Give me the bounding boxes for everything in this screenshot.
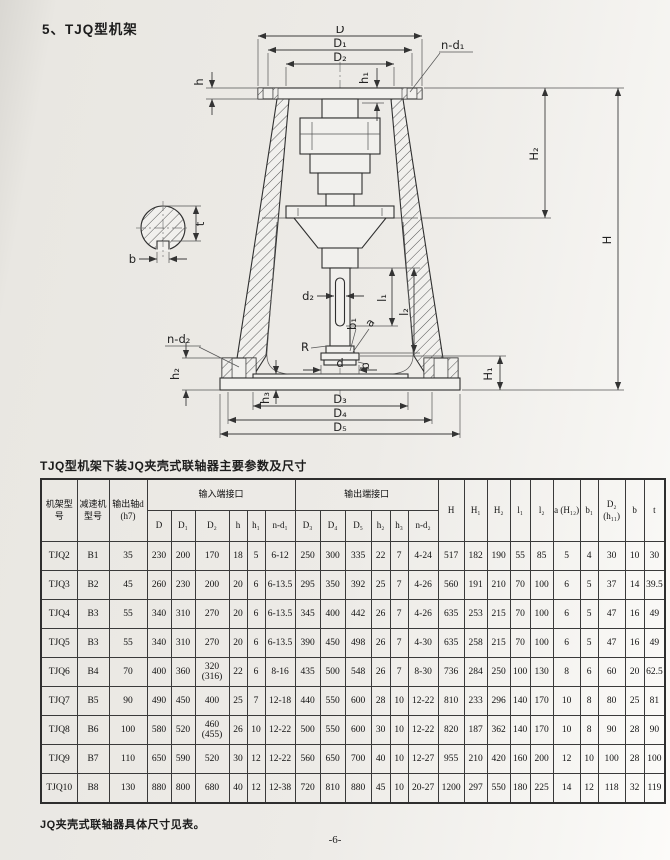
table-cell: 7 xyxy=(390,629,408,658)
table-cell: 5 xyxy=(553,542,580,571)
table-cell: 233 xyxy=(464,687,487,716)
bottom-flange xyxy=(220,378,460,390)
frame-model-cell: TJQ3 xyxy=(41,571,77,600)
col-l2: l₂ xyxy=(530,479,553,542)
table-cell: 7 xyxy=(390,658,408,687)
frame-model-cell: TJQ10 xyxy=(41,774,77,804)
table-cell: 5 xyxy=(247,542,265,571)
table-cell: 10 xyxy=(247,716,265,745)
col-b1: b₁ xyxy=(580,479,598,542)
table-row: TJQ3B2452602302002066-13.52953503922574-… xyxy=(41,571,665,600)
col-h3: h₃ xyxy=(390,511,408,542)
table-cell: 200 xyxy=(195,571,229,600)
table-cell: 442 xyxy=(345,600,371,629)
table-cell: 70 xyxy=(109,658,147,687)
col-H2: H₂ xyxy=(487,479,510,542)
dim-D5: D₅ xyxy=(333,420,347,434)
table-cell: B8 xyxy=(77,774,109,804)
table-cell: 16 xyxy=(625,629,644,658)
table-cell: 6 xyxy=(247,571,265,600)
table-cell: 435 xyxy=(295,658,320,687)
frame-model-cell: TJQ9 xyxy=(41,745,77,774)
dim-l1: l₁ xyxy=(375,294,389,302)
table-cell: 35 xyxy=(109,542,147,571)
table-cell: 90 xyxy=(109,687,147,716)
table-cell: 12-22 xyxy=(265,716,295,745)
dim-l2: l₂ xyxy=(397,308,411,316)
table-cell: 215 xyxy=(487,629,510,658)
table-cell: 60 xyxy=(598,658,625,687)
col-n-d2: n-d₂ xyxy=(408,511,438,542)
table-cell: 500 xyxy=(295,716,320,745)
table-cell: 47 xyxy=(598,600,625,629)
table-cell: 517 xyxy=(438,542,464,571)
table-cell: 310 xyxy=(171,600,195,629)
table-cell: 500 xyxy=(320,658,345,687)
table-cell: 182 xyxy=(464,542,487,571)
table-cell: 360 xyxy=(171,658,195,687)
table-cell: 100 xyxy=(530,600,553,629)
col-l1: l₁ xyxy=(510,479,530,542)
table-cell: 215 xyxy=(487,600,510,629)
table-cell: 20-27 xyxy=(408,774,438,804)
table-cell: 90 xyxy=(598,716,625,745)
frame-model-cell: TJQ6 xyxy=(41,658,77,687)
header-row-1: 机架型号 减速机型号 输出轴d (h7) 输入端接口 输出端接口 H H₁ H₂… xyxy=(41,479,665,511)
col-D2-groove: D₂ (h₁₁) xyxy=(598,479,625,542)
table-cell: 400 xyxy=(147,658,171,687)
table-cell: 5 xyxy=(580,629,598,658)
table-cell: 10 xyxy=(390,687,408,716)
table-cell: 345 xyxy=(295,600,320,629)
col-H1: H₁ xyxy=(464,479,487,542)
table-cell: 180 xyxy=(510,774,530,804)
table-cell: 880 xyxy=(345,774,371,804)
top-flange xyxy=(258,88,422,99)
table-cell: 250 xyxy=(295,542,320,571)
dim-D: D xyxy=(336,26,345,36)
col-output-shaft: 输出轴d (h7) xyxy=(109,479,147,542)
table-cell: 12-22 xyxy=(265,745,295,774)
table-row: TJQ10B8130880800680401212-38720810880451… xyxy=(41,774,665,804)
table-cell: 6 xyxy=(247,629,265,658)
table-cell: 4-26 xyxy=(408,571,438,600)
table-cell: 119 xyxy=(644,774,665,804)
dim-H1: H₁ xyxy=(481,367,495,380)
table-cell: 6 xyxy=(553,600,580,629)
table-cell: 270 xyxy=(195,600,229,629)
table-row: TJQ6B470400360320 (316)2268-164355005482… xyxy=(41,658,665,687)
table-cell: 800 xyxy=(171,774,195,804)
dim-D3: D₃ xyxy=(333,392,347,406)
table-cell: 26 xyxy=(371,629,390,658)
table-cell: 26 xyxy=(371,600,390,629)
table-cell: 736 xyxy=(438,658,464,687)
table-cell: 8-30 xyxy=(408,658,438,687)
table-cell: 6 xyxy=(247,658,265,687)
dim-b-section: b xyxy=(129,252,136,266)
table-cell: 81 xyxy=(644,687,665,716)
table-cell: B4 xyxy=(77,658,109,687)
left-wall xyxy=(234,99,289,378)
table-cell: 720 xyxy=(295,774,320,804)
table-cell: 45 xyxy=(371,774,390,804)
table-cell: 1200 xyxy=(438,774,464,804)
table-cell: 4-30 xyxy=(408,629,438,658)
table-cell: 5 xyxy=(580,571,598,600)
table-cell: 6 xyxy=(580,658,598,687)
table-cell: 30 xyxy=(371,716,390,745)
table-cell: 6 xyxy=(247,600,265,629)
table-cell: 295 xyxy=(295,571,320,600)
table-cell: 6-13.5 xyxy=(265,629,295,658)
table-cell: 187 xyxy=(464,716,487,745)
table-cell: 560 xyxy=(438,571,464,600)
table-cell: 10 xyxy=(553,716,580,745)
table-cell: 450 xyxy=(171,687,195,716)
table-row: TJQ2B1352302001701856-122503003352274-24… xyxy=(41,542,665,571)
table-row: TJQ8B6100580520460 (455)261012-225005506… xyxy=(41,716,665,745)
table-cell: 45 xyxy=(109,571,147,600)
table-cell: 25 xyxy=(625,687,644,716)
dim-n-d1: n-d₁ xyxy=(441,38,464,52)
dim-D2: D₂ xyxy=(333,50,346,64)
technical-drawing: D D₁ D₂ h₁ n-d₁ h H₂ H H₁ l₁ l₂ d₂ R a b… xyxy=(0,26,670,456)
table-cell: 440 xyxy=(295,687,320,716)
table-cell: 7 xyxy=(247,687,265,716)
table-cell: 20 xyxy=(229,571,247,600)
table-cell: 22 xyxy=(229,658,247,687)
table-cell: 635 xyxy=(438,629,464,658)
table-row: TJQ9B7110650590520301212-225606507004010… xyxy=(41,745,665,774)
table-cell: 80 xyxy=(598,687,625,716)
table-cell: 170 xyxy=(195,542,229,571)
dim-R: R xyxy=(301,340,309,354)
col-reducer-model: 减速机型号 xyxy=(77,479,109,542)
table-cell: 22 xyxy=(371,542,390,571)
table-cell: 37 xyxy=(598,571,625,600)
table-cell: 20 xyxy=(229,600,247,629)
table-cell: 6 xyxy=(553,629,580,658)
table-row: TJQ4B3553403102702066-13.53454004422674-… xyxy=(41,600,665,629)
table-cell: 8 xyxy=(553,658,580,687)
table-cell: 225 xyxy=(530,774,553,804)
table-cell: 450 xyxy=(320,629,345,658)
col-h: h xyxy=(229,511,247,542)
table-cell: 8-16 xyxy=(265,658,295,687)
dim-a: a xyxy=(362,316,378,330)
dim-h3: h₃ xyxy=(258,392,272,404)
table-cell: 5 xyxy=(580,600,598,629)
table-cell: 550 xyxy=(320,716,345,745)
dim-d2: d₂ xyxy=(302,289,314,303)
shaft-slot xyxy=(336,278,345,326)
col-h2: h₂ xyxy=(371,511,390,542)
table-cell: 110 xyxy=(109,745,147,774)
table-cell: B3 xyxy=(77,600,109,629)
table-cell: 635 xyxy=(438,600,464,629)
table-cell: 55 xyxy=(109,600,147,629)
table-cell: 28 xyxy=(371,687,390,716)
table-cell: 310 xyxy=(171,629,195,658)
col-D1: D₁ xyxy=(171,511,195,542)
table-cell: 880 xyxy=(147,774,171,804)
table-cell: 210 xyxy=(464,745,487,774)
parameters-table: 机架型号 减速机型号 输出轴d (h7) 输入端接口 输出端接口 H H₁ H₂… xyxy=(40,478,666,804)
col-h1: h₁ xyxy=(247,511,265,542)
table-cell: 130 xyxy=(530,658,553,687)
table-cell: 90 xyxy=(644,716,665,745)
frame-model-cell: TJQ4 xyxy=(41,600,77,629)
table-cell: 230 xyxy=(171,571,195,600)
table-cell: B6 xyxy=(77,716,109,745)
dim-H: H xyxy=(600,236,614,245)
table-cell: B5 xyxy=(77,687,109,716)
table-cell: 170 xyxy=(530,716,553,745)
group-output-port: 输出端接口 xyxy=(295,479,438,511)
table-cell: 4-24 xyxy=(408,542,438,571)
table-cell: 18 xyxy=(229,542,247,571)
dim-n-d2: n-d₂ xyxy=(167,332,190,346)
table-cell: 560 xyxy=(295,745,320,774)
table-cell: 810 xyxy=(320,774,345,804)
table-cell: 284 xyxy=(464,658,487,687)
table-cell: 392 xyxy=(345,571,371,600)
table-cell: 498 xyxy=(345,629,371,658)
table-cell: 362 xyxy=(487,716,510,745)
table-cell: 30 xyxy=(229,745,247,774)
table-cell: 70 xyxy=(510,600,530,629)
table-cell: 62.5 xyxy=(644,658,665,687)
table-cell: 12-27 xyxy=(408,745,438,774)
table-cell: 40 xyxy=(371,745,390,774)
table-cell: 12 xyxy=(553,745,580,774)
table-cell: 130 xyxy=(109,774,147,804)
table-cell: 590 xyxy=(171,745,195,774)
table-cell: 12-22 xyxy=(408,716,438,745)
table-cell: 25 xyxy=(229,687,247,716)
table-cell: 6 xyxy=(553,571,580,600)
col-D2: D₂ xyxy=(195,511,229,542)
table-cell: 118 xyxy=(598,774,625,804)
table-cell: 296 xyxy=(487,687,510,716)
table-cell: 40 xyxy=(229,774,247,804)
table-cell: 32 xyxy=(625,774,644,804)
table-cell: B1 xyxy=(77,542,109,571)
table-cell: 20 xyxy=(625,658,644,687)
table-cell: 335 xyxy=(345,542,371,571)
table-cell: 650 xyxy=(147,745,171,774)
table-cell: 70 xyxy=(510,571,530,600)
table-cell: B3 xyxy=(77,629,109,658)
col-D5: D₅ xyxy=(345,511,371,542)
table-cell: 230 xyxy=(147,542,171,571)
table-cell: 400 xyxy=(195,687,229,716)
table-cell: 26 xyxy=(229,716,247,745)
table-cell: 26 xyxy=(371,658,390,687)
table-cell: 7 xyxy=(390,600,408,629)
base-step xyxy=(253,374,408,378)
table-cell: 47 xyxy=(598,629,625,658)
table-cell: 4 xyxy=(580,542,598,571)
table-cell: 650 xyxy=(320,745,345,774)
table-cell: B2 xyxy=(77,571,109,600)
table-cell: 270 xyxy=(195,629,229,658)
table-cell: 253 xyxy=(464,600,487,629)
table-cell: 820 xyxy=(438,716,464,745)
table-row: TJQ5B3553403102702066-13.53904504982674-… xyxy=(41,629,665,658)
table-cell: 955 xyxy=(438,745,464,774)
table-cell: 49 xyxy=(644,629,665,658)
table-cell: 548 xyxy=(345,658,371,687)
table-cell: 200 xyxy=(171,542,195,571)
page-number: -6- xyxy=(0,834,670,846)
table-cell: 600 xyxy=(345,687,371,716)
table-cell: 550 xyxy=(320,687,345,716)
table-cell: 25 xyxy=(371,571,390,600)
table-cell: 7 xyxy=(390,542,408,571)
table-cell: 350 xyxy=(320,571,345,600)
col-D4: D₄ xyxy=(320,511,345,542)
table-row: TJQ7B59049045040025712-18440550600281012… xyxy=(41,687,665,716)
table-cell: 28 xyxy=(625,716,644,745)
table-cell: 12 xyxy=(580,774,598,804)
dim-d: d xyxy=(336,356,343,370)
dim-h: h xyxy=(192,78,206,85)
dim-H2: H₂ xyxy=(527,147,541,160)
group-input-port: 输入端接口 xyxy=(147,479,295,511)
table-cell: 700 xyxy=(345,745,371,774)
table-cell: 210 xyxy=(487,571,510,600)
table-cell: 170 xyxy=(530,687,553,716)
table-cell: 39.5 xyxy=(644,571,665,600)
table-cell: 100 xyxy=(530,571,553,600)
col-t: t xyxy=(644,479,665,542)
table-body: TJQ2B1352302001701856-122503003352274-24… xyxy=(41,542,665,804)
table-caption: TJQ型机架下装JQ夹壳式联轴器主要参数及尺寸 xyxy=(40,457,307,474)
table-cell: 140 xyxy=(510,687,530,716)
frame-model-cell: TJQ7 xyxy=(41,687,77,716)
col-D3: D₃ xyxy=(295,511,320,542)
table-cell: 12-38 xyxy=(265,774,295,804)
table-cell: 55 xyxy=(109,629,147,658)
table-cell: 12 xyxy=(247,745,265,774)
dim-b1: b₁ xyxy=(345,318,359,330)
table-cell: 400 xyxy=(320,600,345,629)
table-cell: 7 xyxy=(390,571,408,600)
table-cell: 10 xyxy=(580,745,598,774)
table-cell: 85 xyxy=(530,542,553,571)
table-cell: 260 xyxy=(147,571,171,600)
dim-h2: h₂ xyxy=(168,368,182,380)
table-cell: 300 xyxy=(320,542,345,571)
table-cell: 100 xyxy=(510,658,530,687)
dim-t: t xyxy=(193,221,207,226)
table-cell: 580 xyxy=(147,716,171,745)
table-cell: 8 xyxy=(580,687,598,716)
table-cell: 10 xyxy=(390,774,408,804)
col-n-d1: n-d₁ xyxy=(265,511,295,542)
table-cell: 600 xyxy=(345,716,371,745)
table-cell: B7 xyxy=(77,745,109,774)
col-frame-model: 机架型号 xyxy=(41,479,77,542)
table-cell: 100 xyxy=(530,629,553,658)
table-cell: 191 xyxy=(464,571,487,600)
table-cell: 340 xyxy=(147,600,171,629)
table-cell: 10 xyxy=(390,716,408,745)
frame-model-cell: TJQ8 xyxy=(41,716,77,745)
table-cell: 28 xyxy=(625,745,644,774)
table-cell: 10 xyxy=(553,687,580,716)
table-cell: 12-18 xyxy=(265,687,295,716)
dim-h1: h₁ xyxy=(357,72,371,84)
table-cell: 100 xyxy=(644,745,665,774)
col-D: D xyxy=(147,511,171,542)
dim-D1: D₁ xyxy=(333,36,346,50)
right-wall xyxy=(391,99,446,378)
table-cell: 10 xyxy=(390,745,408,774)
table-cell: 6-13.5 xyxy=(265,600,295,629)
table-cell: 16 xyxy=(625,600,644,629)
table-cell: 160 xyxy=(510,745,530,774)
table-cell: 14 xyxy=(553,774,580,804)
table-cell: 70 xyxy=(510,629,530,658)
table-cell: 100 xyxy=(598,745,625,774)
col-b: b xyxy=(625,479,644,542)
table-cell: 8 xyxy=(580,716,598,745)
dim-D4: D₄ xyxy=(333,406,347,420)
table-cell: 20 xyxy=(229,629,247,658)
table-cell: 340 xyxy=(147,629,171,658)
table-cell: 6-12 xyxy=(265,542,295,571)
frame-model-cell: TJQ2 xyxy=(41,542,77,571)
table-cell: 420 xyxy=(487,745,510,774)
taper-hub xyxy=(294,218,386,248)
table-cell: 490 xyxy=(147,687,171,716)
footnote: JQ夹壳式联轴器具体尺寸见表。 xyxy=(40,816,205,832)
table-cell: 12 xyxy=(247,774,265,804)
table-cell: 297 xyxy=(464,774,487,804)
table-cell: 4-26 xyxy=(408,600,438,629)
table-cell: 14 xyxy=(625,571,644,600)
table-cell: 10 xyxy=(625,542,644,571)
table-cell: 550 xyxy=(487,774,510,804)
table-cell: 30 xyxy=(598,542,625,571)
table-cell: 55 xyxy=(510,542,530,571)
table-cell: 49 xyxy=(644,600,665,629)
table-cell: 520 xyxy=(195,745,229,774)
table-cell: 258 xyxy=(464,629,487,658)
table-cell: 100 xyxy=(109,716,147,745)
col-a: a (H₁₂) xyxy=(553,479,580,542)
table-cell: 680 xyxy=(195,774,229,804)
table-cell: 30 xyxy=(644,542,665,571)
table-cell: 520 xyxy=(171,716,195,745)
table-cell: 390 xyxy=(295,629,320,658)
table-cell: 460 (455) xyxy=(195,716,229,745)
table-cell: 12-22 xyxy=(408,687,438,716)
table-cell: 810 xyxy=(438,687,464,716)
frame-model-cell: TJQ5 xyxy=(41,629,77,658)
table-cell: 6-13.5 xyxy=(265,571,295,600)
table-cell: 250 xyxy=(487,658,510,687)
table-cell: 140 xyxy=(510,716,530,745)
table-cell: 200 xyxy=(530,745,553,774)
col-H: H xyxy=(438,479,464,542)
table-cell: 190 xyxy=(487,542,510,571)
table-cell: 320 (316) xyxy=(195,658,229,687)
